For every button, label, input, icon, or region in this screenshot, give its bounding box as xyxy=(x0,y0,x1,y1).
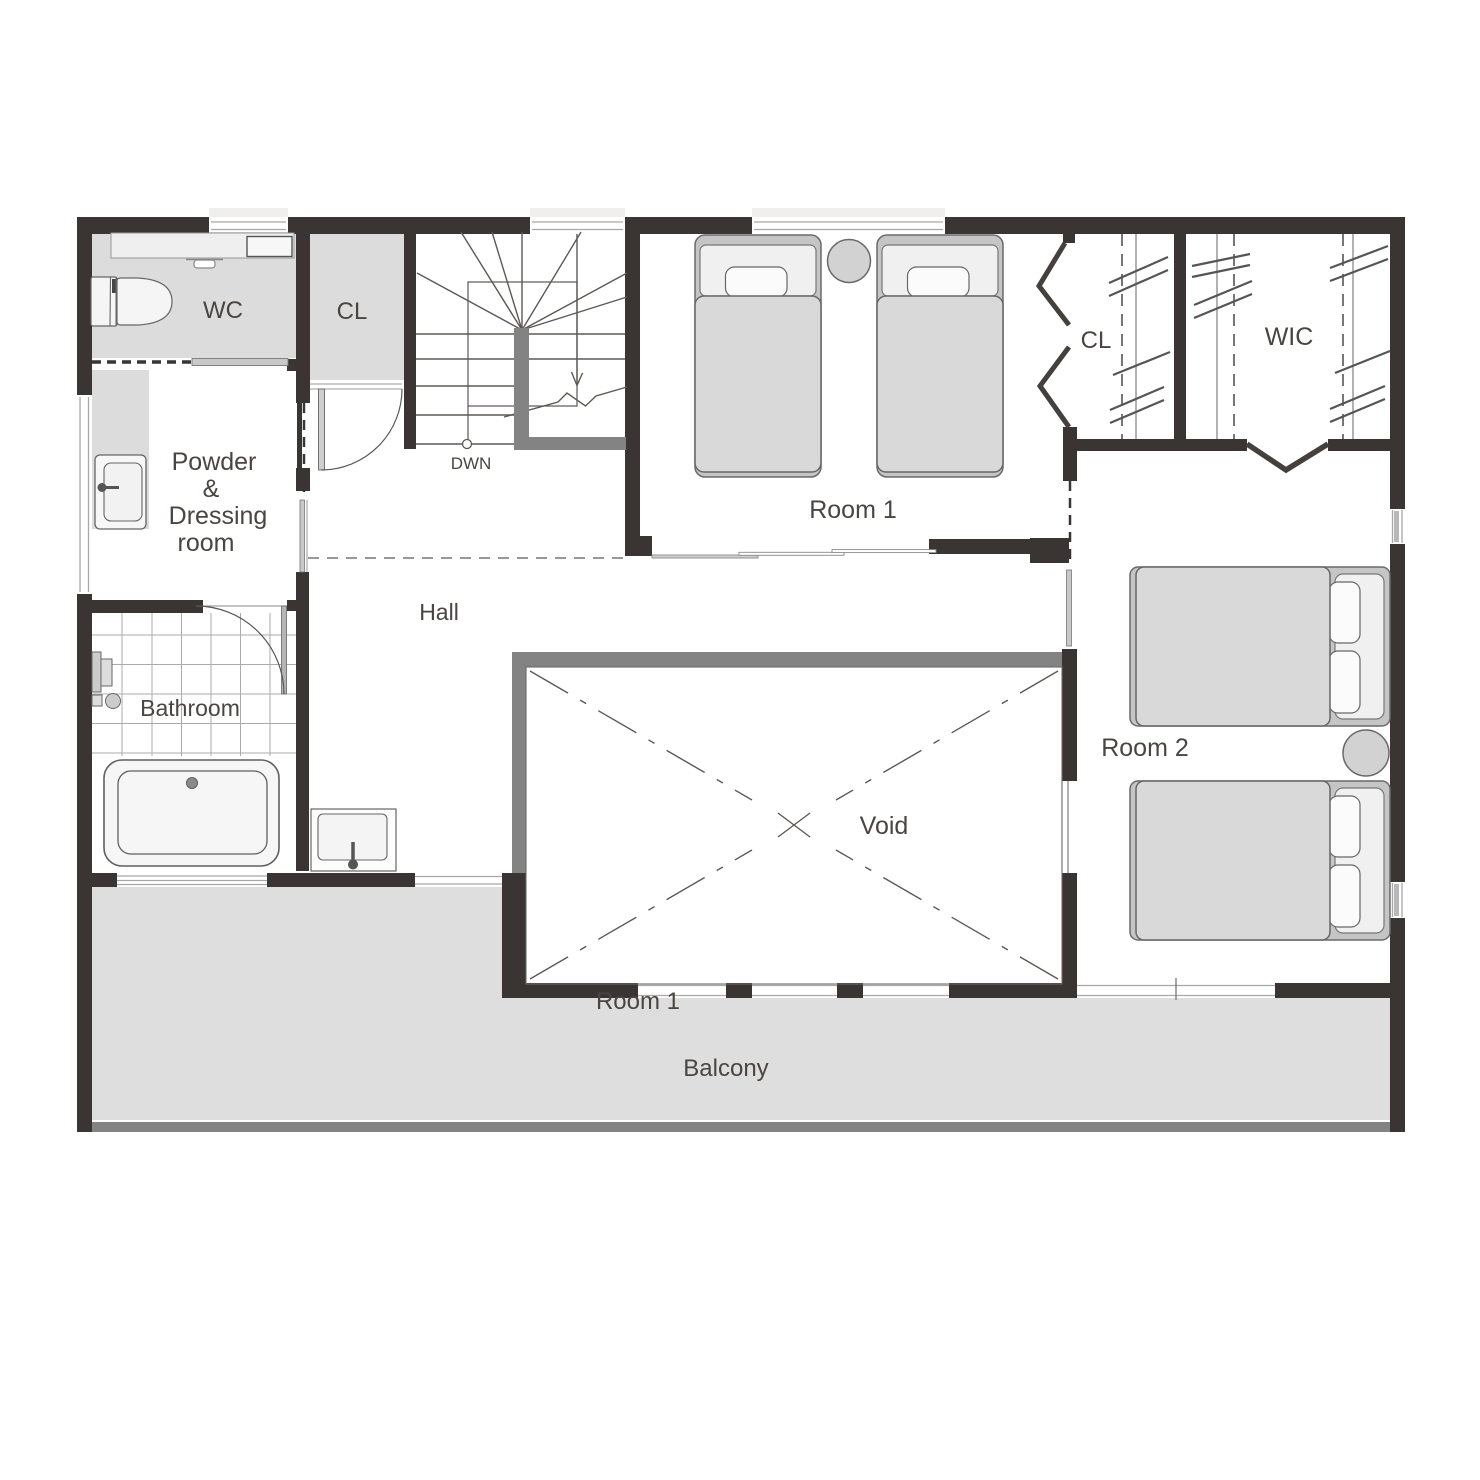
svg-text:Void: Void xyxy=(860,812,909,840)
svg-text:WC: WC xyxy=(203,297,243,324)
svg-text:Bathroom: Bathroom xyxy=(140,695,240,721)
svg-text:Room 2: Room 2 xyxy=(1101,734,1189,762)
svg-text:DWN: DWN xyxy=(451,454,492,473)
svg-text:Room 1: Room 1 xyxy=(596,988,680,1015)
svg-text:Room 1: Room 1 xyxy=(809,496,897,524)
svg-text:WIC: WIC xyxy=(1265,323,1314,351)
svg-text:CL: CL xyxy=(337,298,368,325)
svg-text:Powder: Powder xyxy=(172,448,257,476)
svg-text:Balcony: Balcony xyxy=(683,1055,768,1082)
svg-text:CL: CL xyxy=(1081,327,1112,354)
svg-text:Dressing: Dressing xyxy=(169,502,268,530)
svg-text:room: room xyxy=(178,529,235,557)
svg-text:&: & xyxy=(203,475,220,503)
svg-text:Hall: Hall xyxy=(419,599,459,625)
